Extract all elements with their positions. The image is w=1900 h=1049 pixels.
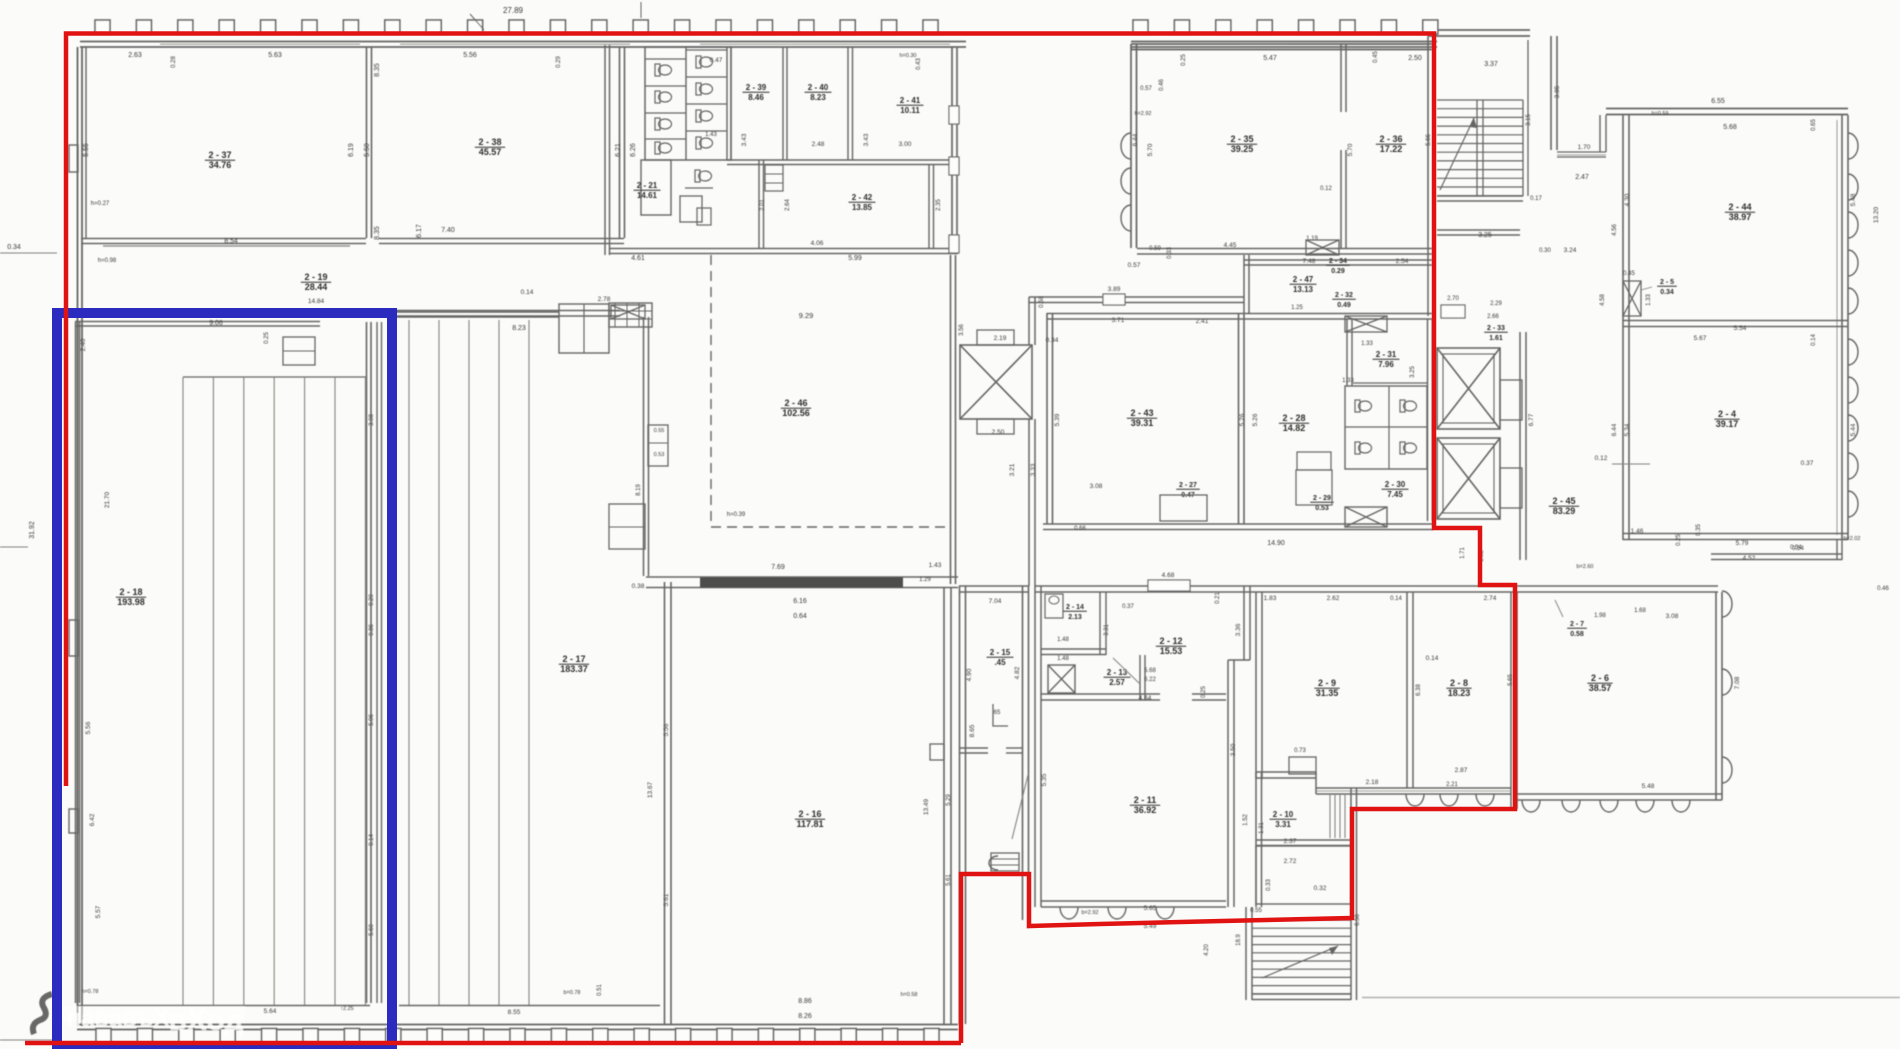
svg-text:5.06: 5.06	[369, 714, 375, 726]
svg-text:6.56: 6.56	[1355, 914, 1361, 926]
svg-text:7.40: 7.40	[441, 227, 455, 234]
svg-text:2.87: 2.87	[1455, 767, 1468, 774]
svg-text:4.58: 4.58	[1600, 294, 1606, 306]
svg-text:2 - 39: 2 - 39	[746, 83, 767, 92]
svg-text:1.43: 1.43	[705, 132, 717, 138]
svg-text:0.46: 0.46	[1877, 586, 1889, 592]
svg-text:2.40: 2.40	[80, 338, 87, 351]
svg-text:5.56: 5.56	[463, 52, 477, 59]
svg-text:0.73: 0.73	[1294, 748, 1306, 754]
svg-text:0.45: 0.45	[1373, 51, 1379, 63]
svg-text:39.25: 39.25	[1231, 144, 1254, 154]
svg-text:10.11: 10.11	[900, 106, 920, 115]
svg-text:2 - 16: 2 - 16	[798, 809, 821, 819]
svg-text:0.14: 0.14	[369, 834, 375, 846]
svg-text:7.08: 7.08	[1734, 676, 1741, 689]
svg-text:15.53: 15.53	[1160, 646, 1183, 656]
svg-text:7.69: 7.69	[771, 564, 785, 571]
svg-text:8.26: 8.26	[798, 1013, 812, 1020]
svg-text:6.44: 6.44	[1132, 133, 1139, 146]
svg-text:8.65: 8.65	[969, 724, 976, 737]
svg-text:8.23: 8.23	[810, 93, 826, 102]
svg-text:0.55: 0.55	[654, 428, 665, 434]
svg-text:h=0.59: h=0.59	[1652, 111, 1669, 117]
svg-text:8.46: 8.46	[748, 93, 764, 102]
svg-text:2 - 45: 2 - 45	[1552, 496, 1575, 506]
svg-text:5.63: 5.63	[268, 52, 282, 59]
svg-text:6.55: 6.55	[1711, 98, 1725, 105]
svg-text:2 - 7: 2 - 7	[1570, 621, 1584, 628]
svg-text:0.14: 0.14	[1390, 596, 1402, 602]
svg-text:0.35: 0.35	[1696, 524, 1702, 536]
svg-text:5.50: 5.50	[364, 143, 371, 157]
svg-text:7.96: 7.96	[1378, 360, 1394, 369]
svg-text:0.57: 0.57	[1128, 262, 1141, 269]
svg-text:13.13: 13.13	[1293, 285, 1314, 294]
svg-text:2 - 5: 2 - 5	[1660, 279, 1674, 286]
svg-text:h=0.58: h=0.58	[901, 992, 918, 998]
svg-text:8.23: 8.23	[512, 325, 526, 332]
svg-text:3.71: 3.71	[1112, 317, 1125, 324]
svg-text:2 - 4: 2 - 4	[1718, 409, 1736, 419]
svg-text:117.81: 117.81	[796, 819, 823, 829]
svg-text:14.61: 14.61	[637, 191, 658, 200]
svg-text:2.62: 2.62	[1327, 595, 1340, 602]
svg-text:3.37: 3.37	[1484, 61, 1498, 68]
svg-text:6.38: 6.38	[1416, 684, 1422, 696]
svg-text:0.33: 0.33	[1266, 879, 1272, 891]
svg-text:4.20: 4.20	[1204, 944, 1210, 956]
svg-text:3.56: 3.56	[959, 324, 965, 336]
svg-text:4.68: 4.68	[1162, 572, 1175, 579]
svg-text:2.66: 2.66	[1487, 314, 1499, 320]
svg-text:0.34: 0.34	[1660, 289, 1674, 296]
svg-text:0.34: 0.34	[1046, 337, 1059, 344]
svg-text:4.45: 4.45	[1224, 242, 1237, 249]
svg-text:3.08: 3.08	[1666, 613, 1679, 620]
svg-text:2 - 46: 2 - 46	[784, 398, 807, 408]
svg-text:2 - 15: 2 - 15	[990, 648, 1011, 657]
svg-text:13.67: 13.67	[647, 781, 654, 798]
svg-text:0.53: 0.53	[654, 452, 665, 458]
svg-text:0.51: 0.51	[597, 984, 603, 996]
svg-text:2 - 35: 2 - 35	[1230, 134, 1253, 144]
svg-text:.45: .45	[994, 658, 1006, 667]
svg-text:3.24: 3.24	[1564, 247, 1577, 254]
svg-text:0.54: 0.54	[1792, 546, 1804, 552]
svg-text:2 - 31: 2 - 31	[1376, 350, 1397, 359]
svg-text:9.06: 9.06	[209, 320, 223, 327]
svg-text:3.85: 3.85	[1554, 85, 1561, 98]
svg-text:14.90: 14.90	[1267, 540, 1285, 547]
svg-text:0.58: 0.58	[1570, 631, 1584, 638]
svg-text:6.21: 6.21	[615, 143, 622, 157]
svg-text:6.16: 6.16	[793, 598, 807, 605]
svg-text:4.56: 4.56	[1612, 224, 1618, 236]
svg-text:4.64: 4.64	[1139, 695, 1152, 702]
svg-text:1.25: 1.25	[1291, 305, 1303, 311]
svg-text:2 - 10: 2 - 10	[1273, 810, 1294, 819]
svg-text:2.70: 2.70	[1447, 296, 1459, 302]
svg-text:8.35: 8.35	[374, 226, 381, 240]
svg-text:0.33: 0.33	[1167, 247, 1173, 259]
svg-text:2 - 14: 2 - 14	[1066, 604, 1084, 611]
svg-text:65: 65	[994, 710, 1001, 716]
svg-text:2 - 40: 2 - 40	[808, 83, 829, 92]
svg-text:6.19: 6.19	[348, 143, 355, 157]
svg-text:2 - 41: 2 - 41	[900, 96, 921, 105]
svg-text:0.25: 0.25	[264, 332, 270, 344]
svg-text:21.70: 21.70	[104, 491, 111, 508]
svg-text:5.65: 5.65	[1144, 905, 1157, 912]
svg-text:4.90: 4.90	[966, 668, 973, 681]
svg-text:0.30: 0.30	[1539, 248, 1551, 254]
svg-text:2 - 19: 2 - 19	[304, 272, 327, 282]
svg-text:8.19: 8.19	[636, 484, 642, 496]
svg-text:0.34: 0.34	[7, 244, 21, 251]
svg-text:0.49: 0.49	[1337, 302, 1351, 309]
svg-text:18.23: 18.23	[1448, 688, 1471, 698]
svg-text:2.13: 2.13	[1068, 614, 1082, 621]
svg-text:0.45: 0.45	[1623, 271, 1635, 277]
svg-text:18.9: 18.9	[1236, 934, 1242, 946]
svg-text:8.55: 8.55	[508, 1009, 521, 1016]
svg-text:2 - 30: 2 - 30	[1385, 480, 1406, 489]
svg-text:2 - 18: 2 - 18	[119, 587, 142, 597]
svg-text:3.21: 3.21	[1009, 463, 1016, 476]
svg-text:3.15: 3.15	[1526, 114, 1532, 126]
svg-text:8.86: 8.86	[798, 998, 812, 1005]
svg-text:0.14: 0.14	[521, 289, 534, 296]
svg-text:38.57: 38.57	[1589, 683, 1612, 693]
svg-text:5.35: 5.35	[1041, 773, 1048, 786]
svg-text:h=0.78: h=0.78	[82, 989, 99, 995]
svg-text:5.64: 5.64	[264, 1008, 277, 1015]
svg-text:5.48: 5.48	[1642, 783, 1655, 790]
svg-text:0.53: 0.53	[1315, 505, 1329, 512]
svg-text:5.34: 5.34	[1624, 423, 1631, 436]
svg-text:4.06: 4.06	[811, 240, 824, 247]
svg-text:0.14: 0.14	[1426, 655, 1439, 662]
svg-text:h=0.30: h=0.30	[900, 53, 917, 59]
svg-text:13.49: 13.49	[923, 798, 930, 815]
svg-text:4.52: 4.52	[1743, 555, 1756, 562]
svg-text:0.25: 0.25	[1201, 686, 1207, 698]
svg-text:6.22: 6.22	[1144, 677, 1156, 683]
svg-text:3.50: 3.50	[1230, 743, 1237, 756]
svg-text:5.44: 5.44	[1850, 423, 1857, 436]
svg-text:13.85: 13.85	[852, 203, 873, 212]
svg-text:2 - 36: 2 - 36	[1379, 134, 1402, 144]
svg-text:0.21: 0.21	[1215, 592, 1221, 604]
svg-text:0.46: 0.46	[1159, 79, 1165, 91]
svg-text:2 - 44: 2 - 44	[1728, 202, 1751, 212]
svg-text:8.54: 8.54	[224, 238, 238, 245]
svg-text:5.39: 5.39	[1054, 413, 1061, 426]
svg-text:3.00: 3.00	[899, 141, 912, 148]
svg-text:h=0.39: h=0.39	[727, 512, 746, 518]
svg-text:0.17: 0.17	[1530, 196, 1542, 202]
svg-text:45.57: 45.57	[479, 147, 502, 157]
svg-text:3.25: 3.25	[1478, 232, 1492, 239]
svg-text:0.66: 0.66	[1074, 526, 1086, 532]
svg-text:0.37: 0.37	[1801, 460, 1814, 467]
svg-text:17.22: 17.22	[1380, 144, 1403, 154]
svg-text:2 - 9: 2 - 9	[1318, 678, 1336, 688]
svg-text:4.61: 4.61	[631, 255, 645, 262]
svg-text:3.43: 3.43	[863, 133, 870, 146]
svg-text:5.48: 5.48	[1850, 193, 1857, 206]
svg-text:2.29: 2.29	[1490, 301, 1502, 307]
svg-text:3.36: 3.36	[1235, 623, 1242, 636]
svg-text:1.68: 1.68	[1634, 608, 1646, 614]
svg-text:0.28: 0.28	[171, 56, 177, 68]
svg-text:2 - 12: 2 - 12	[1159, 636, 1182, 646]
svg-text:2.63: 2.63	[128, 52, 142, 59]
svg-text:0.12: 0.12	[1595, 455, 1608, 462]
svg-text:39.31: 39.31	[1131, 418, 1154, 428]
svg-text:2 - 6: 2 - 6	[1591, 673, 1609, 683]
svg-text:0.47: 0.47	[710, 57, 723, 64]
svg-text:193.98: 193.98	[117, 597, 145, 607]
svg-text:5.99: 5.99	[848, 255, 862, 262]
svg-text:3.31: 3.31	[1104, 624, 1110, 636]
svg-text:2.78: 2.78	[598, 296, 611, 303]
svg-text:0.55: 0.55	[1250, 908, 1262, 914]
svg-text:8.35: 8.35	[374, 63, 381, 77]
svg-text:2 - 33: 2 - 33	[1487, 325, 1505, 332]
svg-text:2 - 47: 2 - 47	[1293, 275, 1314, 284]
svg-text:1.71: 1.71	[1460, 547, 1466, 559]
svg-text:2 - 8: 2 - 8	[1450, 678, 1468, 688]
svg-text:2.72: 2.72	[1284, 858, 1297, 865]
svg-text:2 - 28: 2 - 28	[1282, 413, 1305, 423]
svg-text:0.29: 0.29	[1331, 268, 1345, 275]
svg-text:7.45: 7.45	[1387, 490, 1403, 499]
svg-text:5.79: 5.79	[1736, 540, 1749, 547]
svg-text:b=2.02: b=2.02	[1844, 536, 1861, 542]
svg-text:1.43: 1.43	[929, 562, 942, 569]
svg-text:0.65: 0.65	[1811, 119, 1817, 131]
svg-text:7.48: 7.48	[1303, 258, 1316, 265]
svg-text:1.98: 1.98	[1594, 613, 1606, 619]
svg-text:1.83: 1.83	[1264, 595, 1277, 602]
svg-text:27.89: 27.89	[503, 6, 524, 15]
svg-text:h=0.98: h=0.98	[98, 258, 117, 264]
svg-text:5.68: 5.68	[1144, 668, 1156, 674]
svg-text:1.61: 1.61	[1489, 335, 1503, 342]
svg-text:5.26: 5.26	[1239, 413, 1246, 426]
svg-text:2.47: 2.47	[1575, 174, 1589, 181]
svg-text:1.48: 1.48	[1057, 637, 1069, 643]
svg-text:34.76: 34.76	[209, 160, 232, 170]
svg-text:5.67: 5.67	[1694, 335, 1707, 342]
svg-text:2.01: 2.01	[760, 199, 766, 211]
svg-text:3.33: 3.33	[1030, 463, 1037, 476]
svg-text:14.84: 14.84	[308, 298, 325, 305]
svg-text:5.54: 5.54	[1734, 325, 1747, 332]
svg-text:1.48: 1.48	[1057, 656, 1069, 662]
svg-text:1.33: 1.33	[1646, 294, 1652, 306]
svg-text:2.18: 2.18	[1366, 779, 1379, 786]
svg-text:2.37: 2.37	[1284, 838, 1297, 845]
svg-text:2 - 27: 2 - 27	[1179, 482, 1197, 489]
svg-text:5.70: 5.70	[1347, 143, 1354, 156]
svg-text:0.86: 0.86	[369, 624, 375, 636]
svg-text:1.52: 1.52	[1243, 814, 1249, 826]
svg-text:0.59: 0.59	[1149, 246, 1161, 252]
svg-text:2 - 38: 2 - 38	[478, 137, 501, 147]
svg-text:28.44: 28.44	[305, 282, 328, 292]
svg-text:6.77: 6.77	[1528, 413, 1535, 426]
svg-text:1.29: 1.29	[919, 577, 931, 583]
svg-text:2 - 43: 2 - 43	[1130, 408, 1153, 418]
svg-text:0.37: 0.37	[1122, 604, 1134, 610]
svg-text:2.57: 2.57	[1109, 678, 1125, 687]
svg-text:5.60: 5.60	[369, 924, 375, 936]
svg-text:102.56: 102.56	[782, 408, 810, 418]
svg-text:h=2.92: h=2.92	[1135, 111, 1152, 117]
svg-text:2.64: 2.64	[785, 199, 791, 211]
svg-text:2 - 17: 2 - 17	[562, 654, 585, 664]
svg-text:2 - 21: 2 - 21	[637, 181, 658, 190]
svg-text:0.58: 0.58	[1039, 296, 1045, 308]
svg-text:31.92: 31.92	[29, 521, 36, 539]
svg-text:0.29: 0.29	[556, 56, 562, 68]
svg-text:0.25: 0.25	[1181, 54, 1187, 66]
svg-text:0.14: 0.14	[1811, 334, 1817, 346]
svg-text:2.50: 2.50	[1408, 55, 1422, 62]
svg-text:2 - 29: 2 - 29	[1313, 495, 1331, 502]
svg-text:6.17: 6.17	[416, 224, 423, 238]
svg-text:2.35: 2.35	[936, 199, 942, 211]
svg-text:0.57: 0.57	[1140, 86, 1152, 92]
svg-text:2 - 32: 2 - 32	[1335, 292, 1353, 299]
svg-text:0.25: 0.25	[1676, 534, 1682, 546]
svg-text:36.92: 36.92	[1134, 805, 1157, 815]
svg-text:0.32: 0.32	[1314, 885, 1327, 892]
svg-text:2 - 42: 2 - 42	[852, 193, 873, 202]
svg-text:0.43: 0.43	[916, 58, 922, 70]
svg-text:14.82: 14.82	[1283, 423, 1306, 433]
svg-text:↑2.25: ↑2.25	[340, 1006, 353, 1012]
svg-text:1.31: 1.31	[1259, 822, 1265, 834]
svg-text:2 - 34: 2 - 34	[1329, 258, 1347, 265]
svg-text:5.56: 5.56	[85, 721, 92, 734]
svg-text:5.55: 5.55	[83, 143, 90, 157]
svg-text:5.66: 5.66	[1426, 134, 1432, 146]
svg-text:3.89: 3.89	[1108, 286, 1121, 293]
svg-text:4.30: 4.30	[1624, 193, 1631, 206]
svg-text:0.38: 0.38	[632, 583, 645, 590]
svg-text:2.21: 2.21	[1446, 782, 1458, 788]
svg-text:2.48: 2.48	[812, 141, 825, 148]
svg-text:39.17: 39.17	[1716, 419, 1739, 429]
svg-text:3.08: 3.08	[369, 414, 375, 426]
svg-text:6.44: 6.44	[1611, 423, 1618, 436]
svg-text:2.74: 2.74	[1484, 595, 1497, 602]
svg-text:5.57: 5.57	[95, 905, 102, 918]
svg-text:5.29: 5.29	[946, 794, 952, 806]
svg-text:5.26: 5.26	[1252, 413, 1259, 426]
svg-text:5.68: 5.68	[1723, 124, 1737, 131]
svg-text:2.50: 2.50	[992, 429, 1005, 436]
svg-text:1.33: 1.33	[1361, 341, 1373, 347]
svg-text:83.29: 83.29	[1553, 506, 1576, 516]
svg-text:5.61: 5.61	[946, 874, 952, 886]
svg-text:31.35: 31.35	[1316, 688, 1339, 698]
svg-text:2.19: 2.19	[994, 335, 1007, 342]
svg-text:3.08: 3.08	[1090, 483, 1103, 490]
svg-text:3.25: 3.25	[1410, 366, 1416, 378]
svg-text:2 - 37: 2 - 37	[208, 150, 231, 160]
svg-text:5.47: 5.47	[1263, 55, 1277, 62]
svg-text:0.12: 0.12	[1320, 186, 1332, 192]
svg-text:13.20: 13.20	[1873, 206, 1880, 223]
svg-text:9.29: 9.29	[799, 311, 814, 320]
svg-text:2.54: 2.54	[1396, 258, 1409, 265]
svg-text:6.26: 6.26	[630, 143, 637, 157]
svg-text:7.04: 7.04	[989, 598, 1002, 605]
svg-text:183.37: 183.37	[560, 664, 588, 674]
svg-text:вХод: вХод	[168, 1004, 243, 1037]
svg-text:3.43: 3.43	[741, 133, 748, 146]
svg-text:5.70: 5.70	[1147, 143, 1154, 156]
svg-text:h=0.27: h=0.27	[91, 201, 110, 207]
svg-text:2 - 11: 2 - 11	[1134, 795, 1157, 805]
svg-text:1.70: 1.70	[1578, 144, 1591, 151]
svg-text:b=0.78: b=0.78	[564, 990, 581, 996]
svg-text:b=2.92: b=2.92	[1082, 910, 1099, 916]
svg-text:0.20: 0.20	[369, 594, 375, 606]
svg-text:3.31: 3.31	[1275, 820, 1291, 829]
svg-text:0.64: 0.64	[793, 613, 807, 620]
svg-text:38.97: 38.97	[1729, 212, 1752, 222]
svg-text:6.42: 6.42	[89, 813, 96, 826]
svg-text:b=2.60: b=2.60	[1577, 564, 1594, 570]
svg-text:4.82: 4.82	[1014, 666, 1021, 679]
